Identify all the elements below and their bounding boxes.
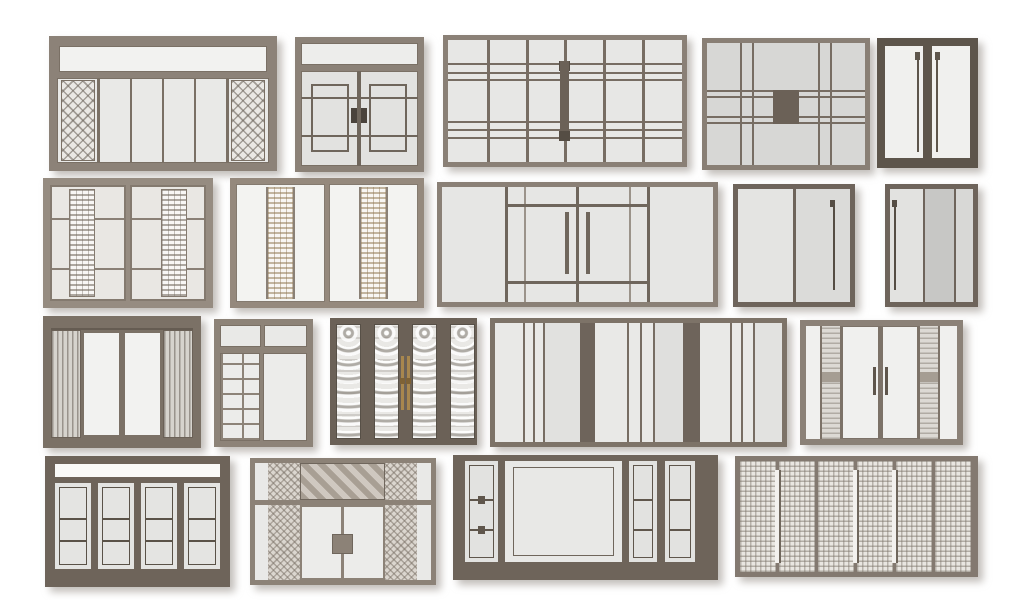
stile [752,43,754,165]
rail [579,281,647,284]
panel-tick [633,499,653,501]
leaf-border-right [122,330,163,438]
stile [97,78,100,163]
side-glass [417,505,431,580]
stile [642,40,645,162]
panel-tick [102,518,130,520]
grid-column [220,353,260,441]
panel-tick [633,529,653,531]
stile [359,187,361,299]
stile [820,326,822,439]
door-r2c3-center-double-with-sidelites [437,182,718,307]
stile [543,323,545,442]
stile [130,78,132,163]
glass [738,189,793,302]
stile [487,40,490,162]
panel-tick [188,540,216,542]
door-r3c2-transom-grid-column [214,319,313,447]
handle-right [936,52,938,152]
stile [266,187,268,299]
transom-glass-left [220,325,261,347]
door-r3c1-striped-lattice-double-door [43,316,201,448]
panel-tick [145,518,173,520]
stile [526,40,529,162]
handle-left [873,367,876,395]
bead-column-right [161,189,187,297]
handle-groove [857,470,859,563]
door-r4c3-picture-panel-unit [453,455,718,580]
rail [508,204,576,207]
narrow-panel-border [633,465,653,558]
lattice-panel [818,461,854,572]
narrow-panel-border [669,465,691,558]
bead-strip-right [361,187,386,299]
handle-right [885,367,888,395]
mullion [187,268,204,270]
inner-rect-left [311,84,349,152]
carved-strip [374,324,399,439]
stile [647,187,650,302]
inner-rect-right [369,84,407,152]
stile [938,326,940,439]
handle-right [586,212,590,274]
stile [293,187,295,299]
mullion [187,218,204,220]
center-square [773,90,799,124]
transom-glass [59,46,267,72]
door-r1c5-narrow-double-door [877,38,978,168]
transom-lattice [268,463,300,500]
door-r2c2-gold-bead-strip-two-leaf [230,178,424,308]
lattice-panel-right [231,80,265,161]
stile [740,43,742,165]
rail [508,281,576,284]
door-r2c4-open-pocket-slider [733,184,978,307]
stile [753,323,755,442]
leaf-border-left [81,330,122,438]
handle [833,200,835,290]
panel-tick [669,499,691,501]
pull-bar-cap [559,131,570,141]
stile [818,43,820,165]
lattice-strip-left [822,326,840,439]
panel-inner-border [59,487,87,565]
transom-diamond-panel [300,463,385,500]
bead-strip-left [268,187,293,299]
panel-inner-border [145,487,173,565]
lattice-panel [935,461,971,572]
stile [386,187,388,299]
stile [194,78,196,163]
door-r3c3-carved-glass-double-door [330,318,477,445]
lattice-panel [857,461,893,572]
door-gallery [0,0,1024,600]
glass-shade [753,323,782,442]
narrow-panel-border [469,465,494,558]
panel-knot [478,496,485,504]
tall-glass-pane [263,353,307,441]
door-r1c4-plaid-band-slider [702,38,870,170]
lattice-panel [740,461,776,572]
stile [741,323,743,442]
handle-left [351,108,357,123]
panel-knot [478,526,485,534]
carved-strip [412,324,437,439]
rail [579,204,647,207]
transom-glass-right [264,325,307,347]
stile [603,40,606,162]
panel-inner-border [102,487,130,565]
square-pull-plate [332,534,353,554]
lattice-band [920,372,938,382]
mullion [52,268,69,270]
panel-tick [102,540,130,542]
handle-groove [896,470,898,563]
door-r4c2-mesh-lattice-entry [250,458,436,585]
door-r2c1-bead-lattice-two-leaf [43,178,213,308]
mullion [132,218,161,220]
carved-strip [336,324,361,439]
glass [796,189,850,302]
transom-lattice [385,463,417,500]
stile [533,323,535,442]
transom-band [55,464,220,477]
transom-glass [417,463,431,500]
wide-stile [683,323,700,442]
glass [956,189,973,302]
door-r4c4-full-lattice-screen [735,456,978,577]
lattice-panel-left [51,330,81,438]
panel-tick [188,518,216,520]
center-stile [126,185,130,301]
stile [523,323,525,442]
stile [226,78,229,163]
panel-inner-border [188,487,216,565]
panel-tick [59,540,87,542]
mullion [95,268,124,270]
panel-tick [669,529,691,531]
lattice-column [385,505,417,580]
handle-groove [779,470,781,563]
mullion [52,218,69,220]
door-r1c1-transom-chevron-lattice-slider [49,36,277,171]
stile [918,326,920,439]
glass-shade [543,323,580,442]
handle-left [565,212,569,274]
transom-glass [301,43,418,65]
stile [640,323,642,442]
mullion [95,218,124,220]
pull-bar [560,61,569,141]
stile [627,323,629,442]
lattice-panel [779,461,815,572]
handle-joint [400,378,405,384]
door-r3c5-lattice-strip-double-door [800,320,963,445]
door-r4c1-four-panel-mullioned [45,456,230,587]
stile [730,323,732,442]
door-r3c4-alternating-panel-slider [490,318,787,447]
center-inner-border [513,467,614,556]
wide-stile [580,323,595,442]
side-glass [255,505,268,580]
center-stile [325,184,329,302]
stile [830,43,832,165]
lattice-band [822,372,840,382]
carved-strip [450,324,475,439]
lattice-panel-left [61,80,95,161]
lattice-column [268,505,300,580]
glass-shade [653,323,683,442]
handle-joint [406,378,411,384]
handle-left [917,52,919,152]
panel-tick [59,518,87,520]
stile [653,323,655,442]
lattice-panel-right [163,330,193,438]
glass-dark [925,189,954,302]
mullion [132,268,161,270]
bead-column-left [69,189,95,297]
transom-glass [255,463,268,500]
stile [162,78,164,163]
lattice-strip-right [920,326,938,439]
handle-right [361,108,367,123]
interior-glass [495,323,782,442]
handle [894,200,896,290]
panel-tick [145,540,173,542]
lattice-panel [896,461,932,572]
door-r1c3-grid-slider-center-pull [443,35,687,167]
door-r1c2-transom-double-door-concentric [295,37,424,172]
